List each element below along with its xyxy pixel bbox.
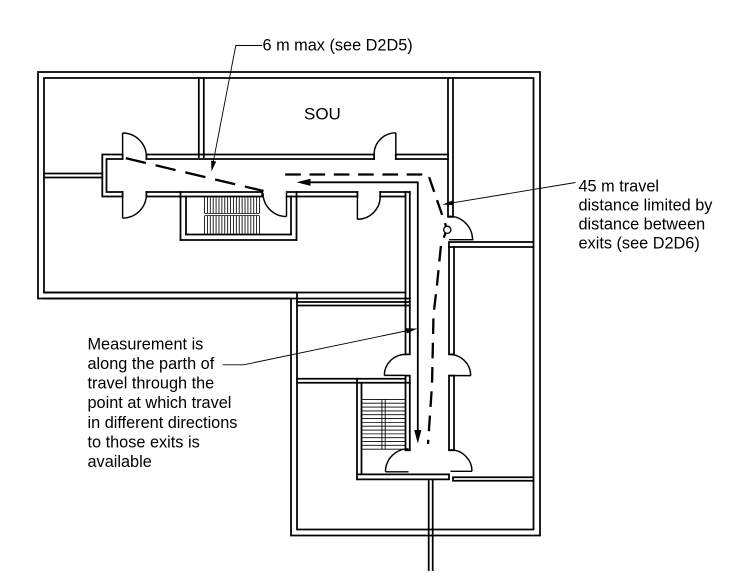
svg-text:SOU: SOU <box>304 105 341 124</box>
svg-text:in different directions: in different directions <box>88 414 238 432</box>
svg-text:travel through the: travel through the <box>88 375 215 393</box>
svg-text:6 m max (see D2D5): 6 m max (see D2D5) <box>263 37 413 55</box>
svg-text:exits (see D2D6): exits (see D2D6) <box>579 235 700 253</box>
svg-text:Measurement is: Measurement is <box>88 335 204 353</box>
svg-text:distance limited by: distance limited by <box>579 197 714 215</box>
svg-text:distance between: distance between <box>579 216 706 234</box>
svg-text:along the parth of: along the parth of <box>88 355 215 373</box>
svg-text:45 m travel: 45 m travel <box>579 178 660 196</box>
svg-text:available: available <box>88 453 152 471</box>
svg-text:point at which travel: point at which travel <box>88 394 232 412</box>
svg-text:to those exits is: to those exits is <box>88 433 200 451</box>
